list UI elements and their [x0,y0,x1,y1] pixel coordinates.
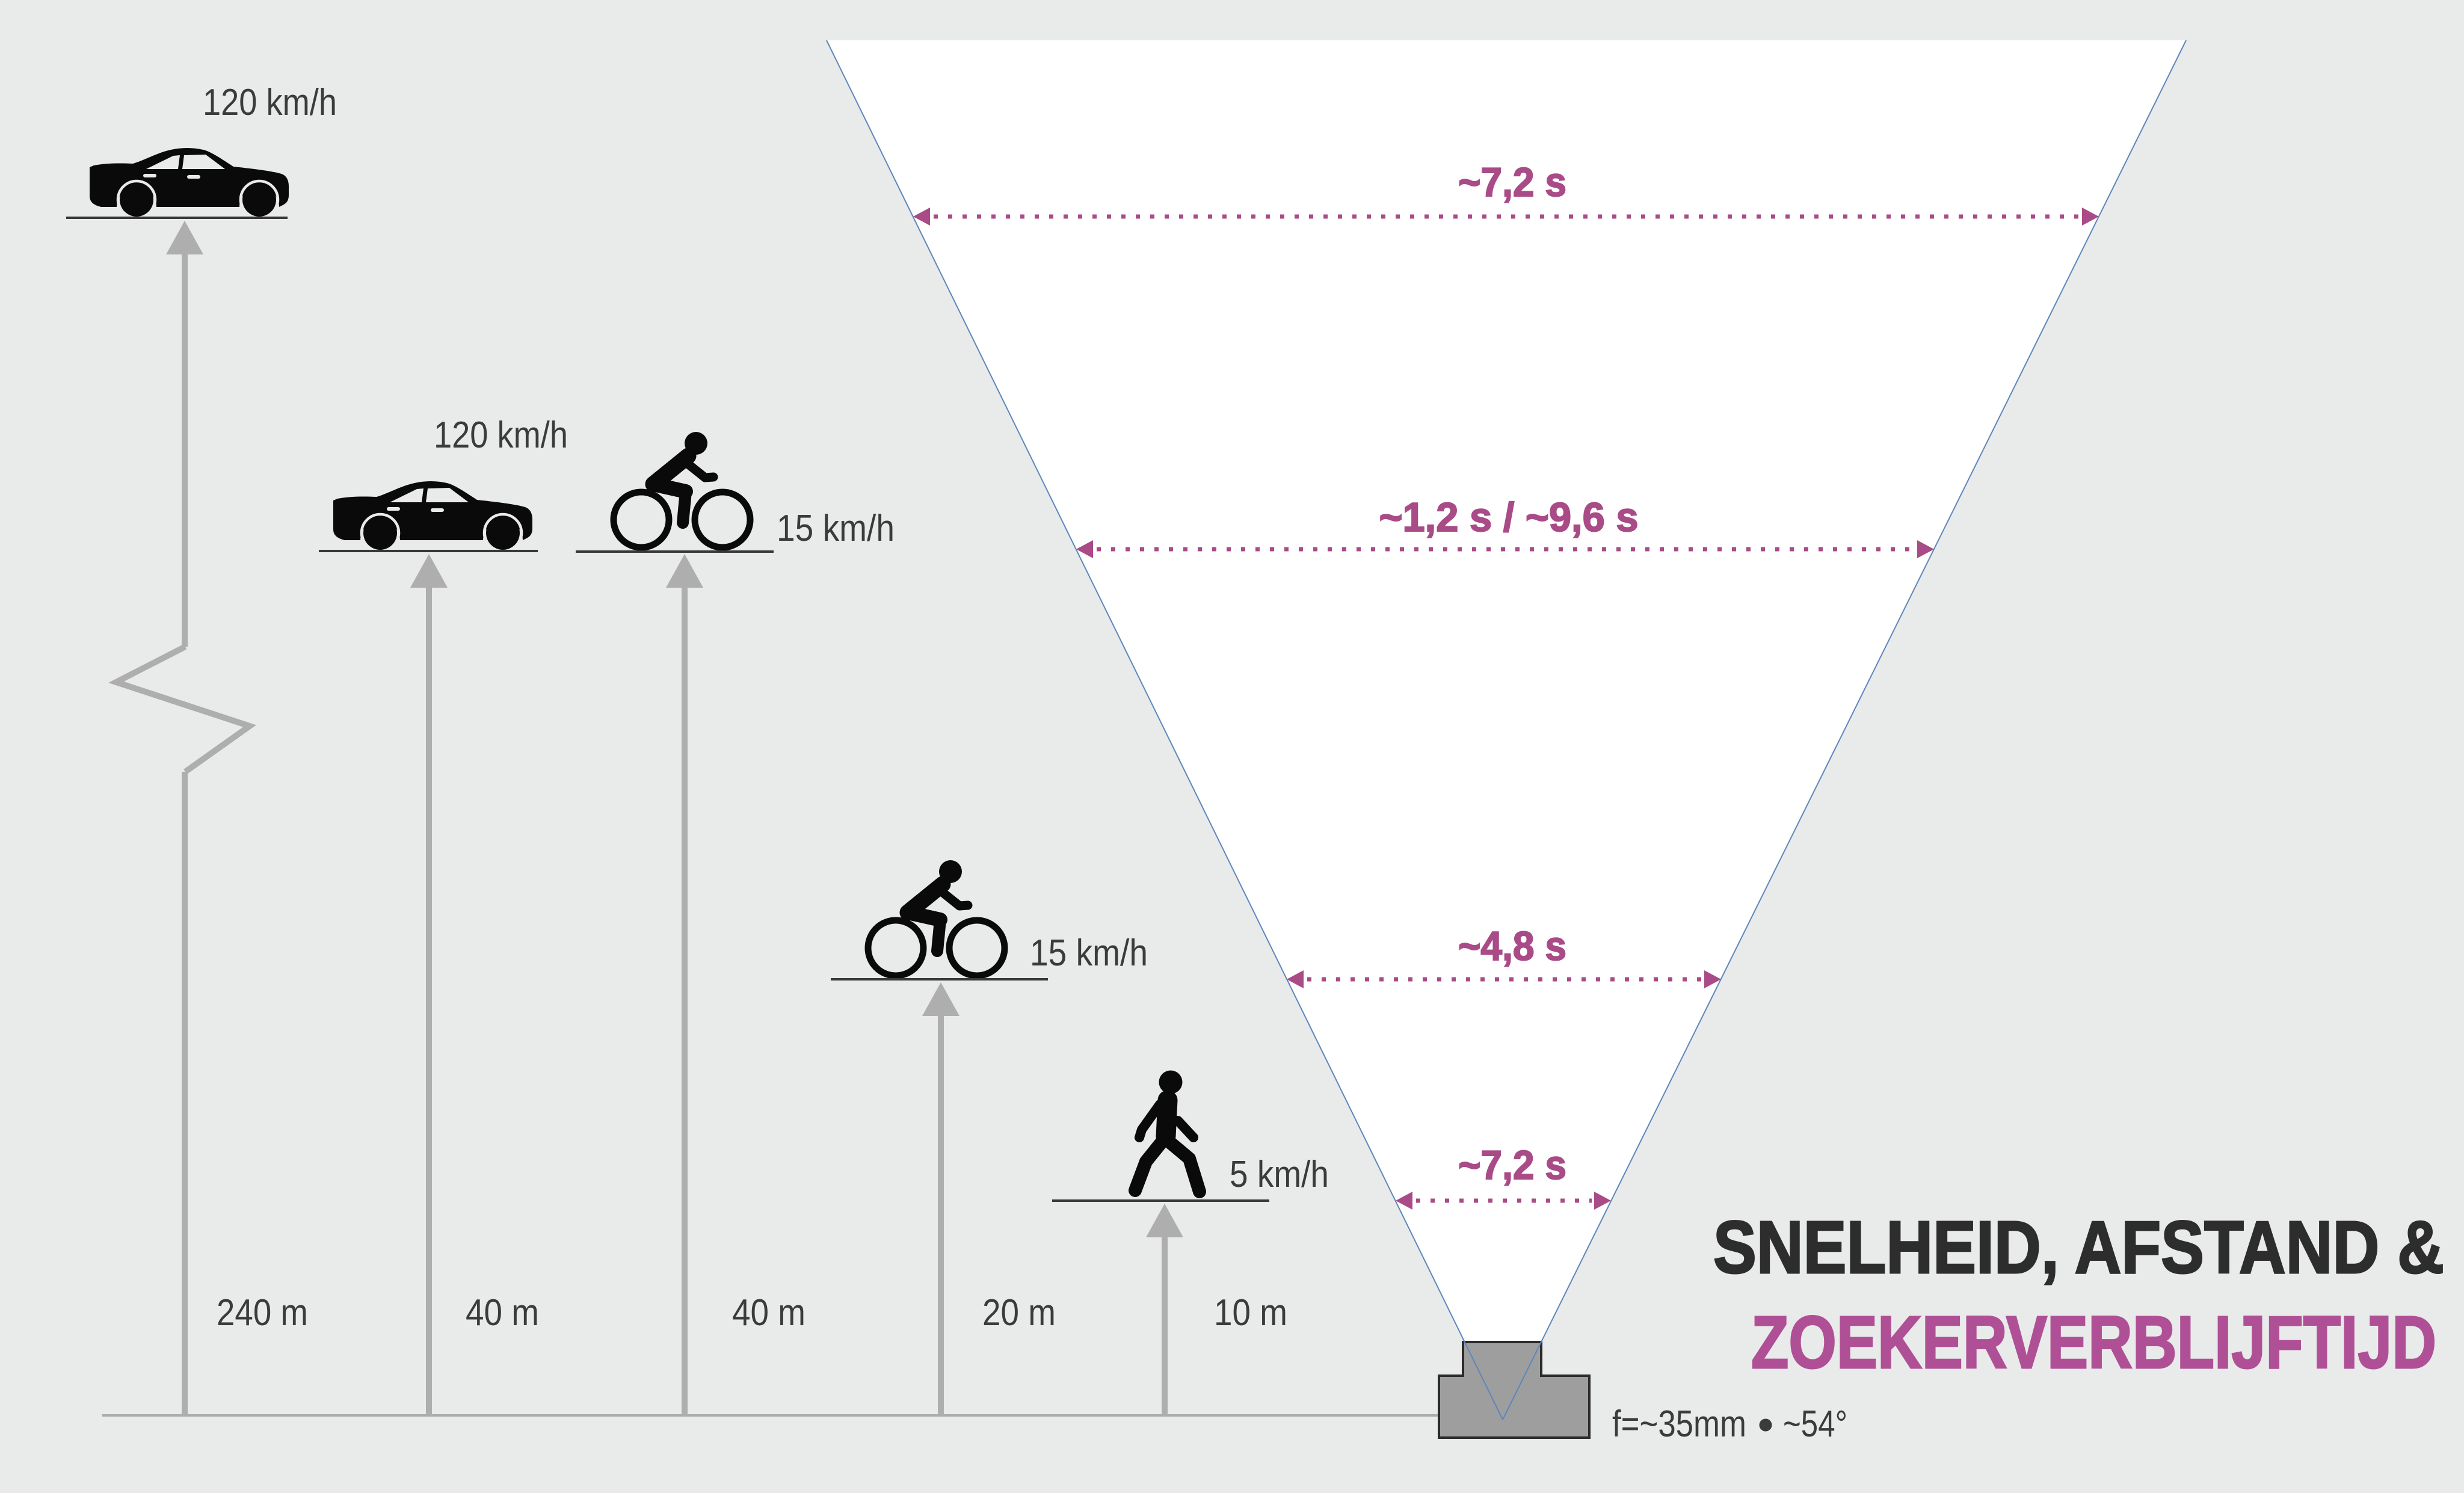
svg-text:~1,2 s / ~9,6 s: ~1,2 s / ~9,6 s [1379,494,1639,540]
svg-text:~4,8 s: ~4,8 s [1458,923,1566,969]
svg-text:15 km/h: 15 km/h [1030,932,1148,974]
svg-text:~7,2 s: ~7,2 s [1458,1142,1566,1188]
svg-text:f=~35mm: f=~35mm [1612,1403,1746,1445]
svg-text:10 m: 10 m [1214,1292,1287,1334]
svg-text:240 m: 240 m [217,1292,308,1334]
svg-text:15 km/h: 15 km/h [777,508,895,549]
svg-text:ZOEKERVERBLIJFTIJD: ZOEKERVERBLIJFTIJD [1751,1302,2436,1384]
svg-text:120 km/h: 120 km/h [434,414,568,456]
svg-text:40 m: 40 m [732,1292,805,1334]
svg-text:SNELHEID, AFSTAND &: SNELHEID, AFSTAND & [1713,1207,2444,1289]
svg-text:~7,2 s: ~7,2 s [1458,159,1566,205]
svg-text:40 m: 40 m [466,1292,539,1334]
svg-text:~54°: ~54° [1783,1403,1847,1445]
svg-text:20 m: 20 m [982,1292,1056,1334]
svg-text:5 km/h: 5 km/h [1230,1154,1329,1195]
svg-text:120 km/h: 120 km/h [203,82,337,123]
